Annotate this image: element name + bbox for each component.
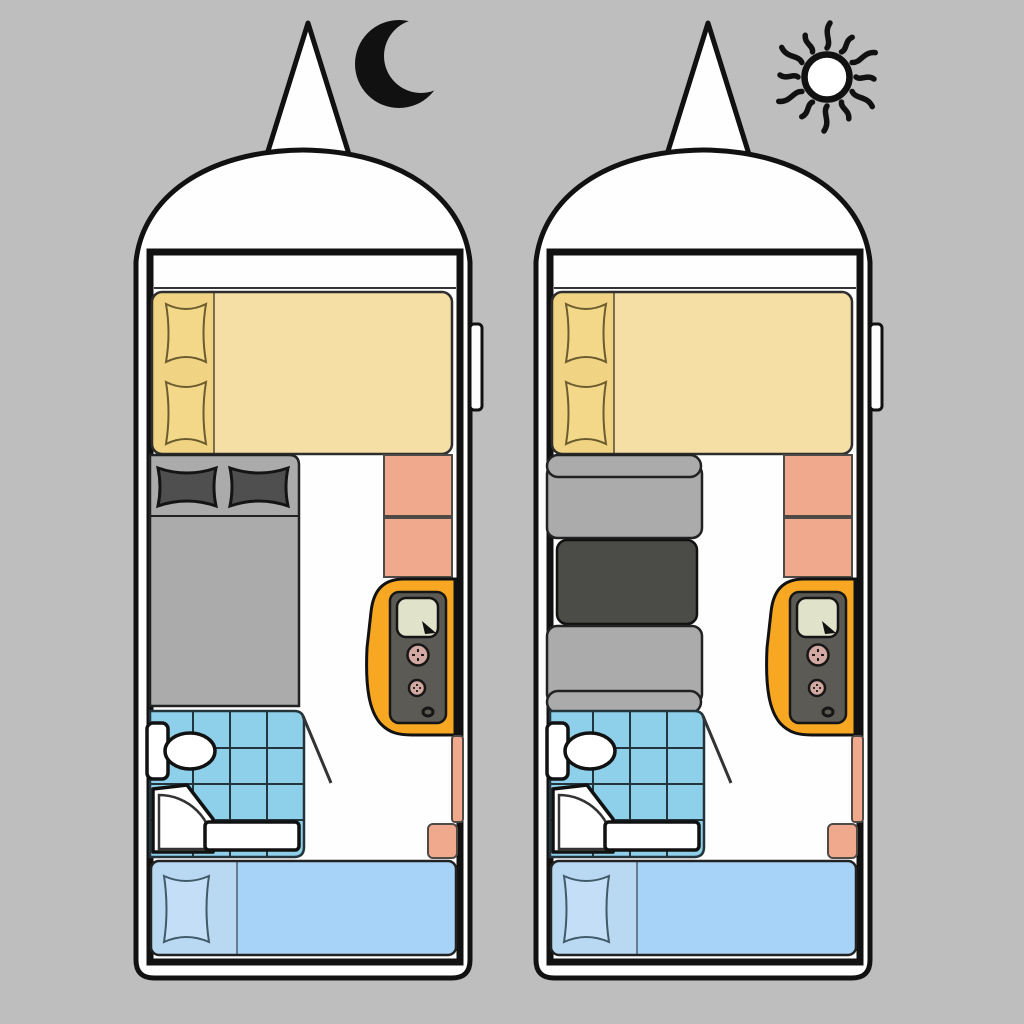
door-handle-tab [470,324,482,410]
side-shelf [852,736,863,822]
side-shelf [452,736,463,822]
dark-pillow [230,468,288,506]
rear-bed [151,861,456,955]
front-bed [552,292,852,454]
seat-backrest [547,455,701,477]
side-shelf [828,824,857,858]
heater-knob [809,680,825,696]
heater-knob [408,645,429,666]
door-handle-tab [870,324,882,410]
pillow [566,304,606,362]
heater-unit [767,579,855,735]
hitch-triangle [264,23,352,164]
sun-icon [779,23,876,131]
moon-icon [355,19,458,108]
caravan-day [536,23,882,978]
front-bed [152,292,452,454]
rear-bed [551,861,856,955]
pillow [566,382,606,444]
dark-pillow [158,468,216,506]
pillow [166,382,206,444]
pillow [166,304,206,362]
bathroom [147,711,331,857]
cabinet [384,455,452,516]
dinette [547,455,702,713]
dinette-table [557,540,697,624]
cabinet [784,518,852,577]
heater-knob [808,645,829,666]
night-double-bed [150,455,299,706]
toilet-bowl [165,733,215,769]
heater-unit [367,579,455,735]
seat-backrest [547,691,701,713]
toilet-bowl [565,733,615,769]
heater-knob [409,680,425,696]
hitch-triangle [664,23,752,164]
pillow [164,876,209,942]
floorplan-canvas [0,0,1024,1024]
pillow [564,876,609,942]
shower-bench [205,822,299,850]
cabinet [784,455,852,516]
caravan-night [136,23,482,978]
side-shelf [428,824,457,858]
cabinet [384,518,452,577]
shower-bench [605,822,699,850]
bathroom [547,711,731,857]
